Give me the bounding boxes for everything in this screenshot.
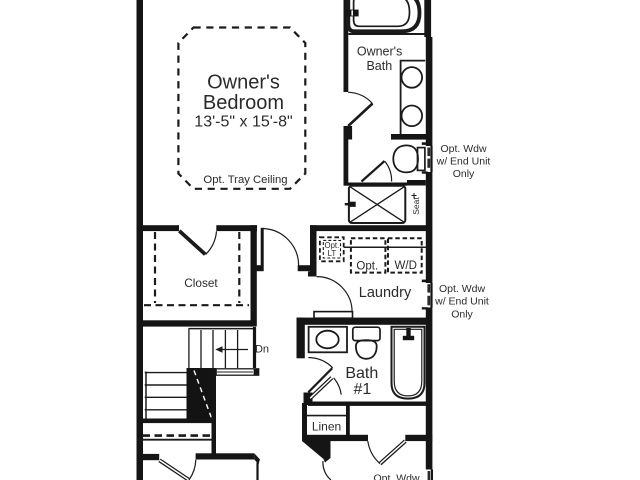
svg-text:Bath: Bath: [366, 59, 392, 73]
svg-text:13'-5" x 15'-8": 13'-5" x 15'-8": [194, 114, 292, 131]
svg-text:Only: Only: [451, 308, 473, 320]
svg-text:Linen: Linen: [312, 419, 341, 433]
svg-text:#1: #1: [354, 381, 372, 398]
svg-text:W/D: W/D: [395, 260, 417, 272]
svg-text:Dn: Dn: [255, 344, 269, 356]
svg-text:Seat: Seat: [411, 197, 421, 215]
svg-text:Owner's: Owner's: [357, 44, 402, 58]
svg-text:Opt. Tray Ceiling: Opt. Tray Ceiling: [203, 174, 287, 186]
svg-text:w/ End Unit: w/ End Unit: [436, 155, 491, 167]
svg-text:Closet: Closet: [184, 276, 218, 290]
svg-text:Owner's: Owner's: [207, 72, 280, 94]
svg-text:Bath: Bath: [345, 365, 378, 382]
svg-text:LT: LT: [328, 249, 337, 258]
svg-text:Opt. Wdw: Opt. Wdw: [439, 283, 486, 295]
svg-text:Opt. Wdw: Opt. Wdw: [440, 143, 487, 155]
svg-text:Only: Only: [453, 168, 475, 180]
svg-text:Bedroom: Bedroom: [203, 92, 284, 114]
svg-text:w/ End Unit: w/ End Unit: [434, 295, 489, 307]
svg-text:Opt. Wdw: Opt. Wdw: [373, 473, 420, 480]
svg-text:Opt.: Opt.: [356, 260, 378, 272]
svg-text:Laundry: Laundry: [359, 285, 412, 301]
